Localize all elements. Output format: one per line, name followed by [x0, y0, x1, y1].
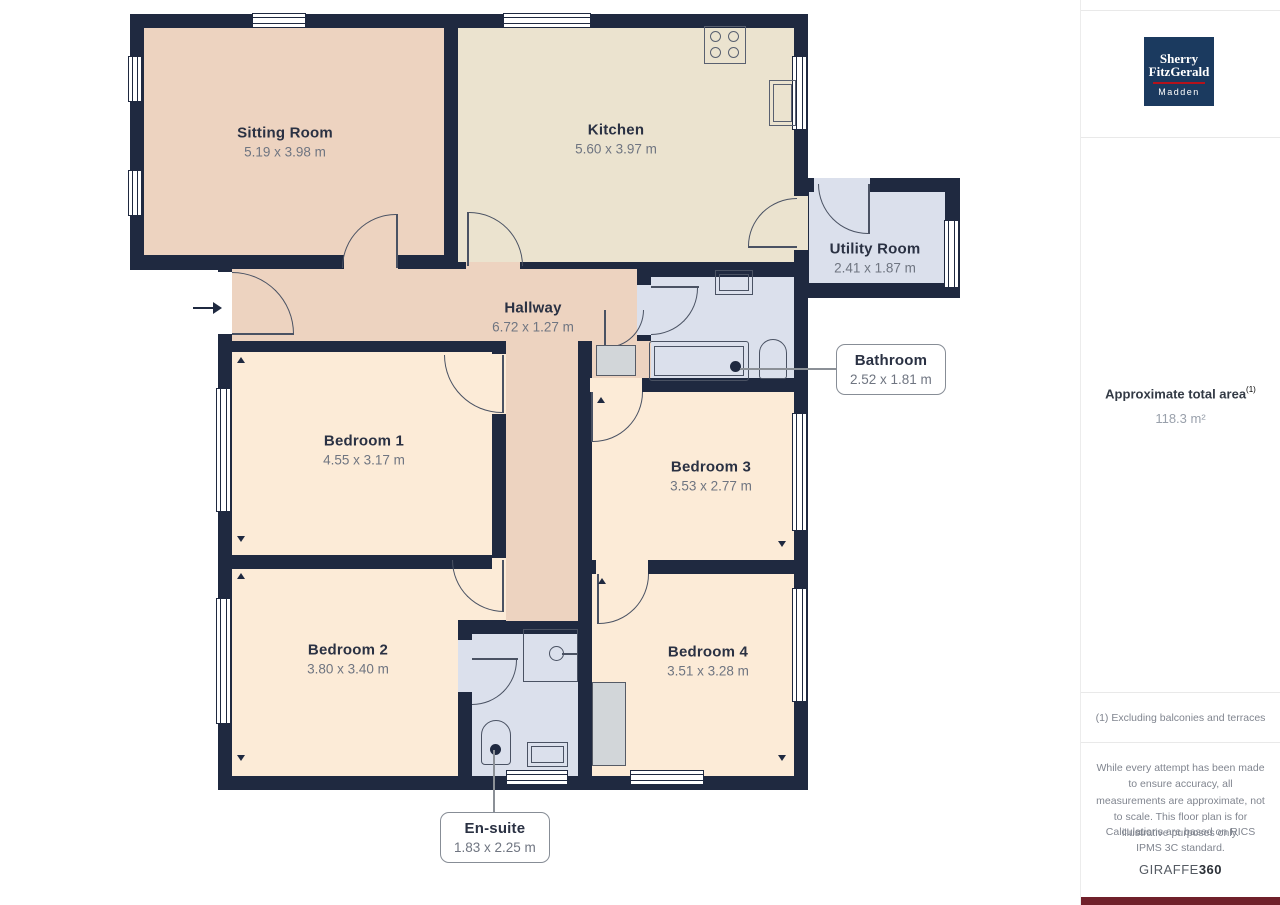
room-dimensions: 2.41 x 1.87 m: [830, 261, 921, 276]
measure-arrow: [598, 578, 606, 584]
logo-text: Madden: [1144, 87, 1214, 97]
measure-arrow: [237, 536, 245, 542]
room-dimensions: 3.53 x 2.77 m: [670, 479, 752, 494]
bedroom3-door-gap: [590, 378, 642, 392]
brand-text: GIRAFFE: [1139, 862, 1199, 877]
window: [216, 388, 231, 512]
room-name: Kitchen: [575, 122, 657, 139]
room-name: En-suite: [454, 820, 536, 837]
room-label-bedroom3: Bedroom 3 3.53 x 2.77 m: [670, 459, 752, 494]
disclaimer-standard: Calculations are based on RICS IPMS 3C s…: [1095, 824, 1266, 857]
shower-arm: [562, 653, 578, 655]
bathtub-dot: [730, 361, 741, 372]
room-name: Utility Room: [830, 241, 921, 258]
brand-text-bold: 360: [1199, 862, 1222, 877]
room-dimensions: 3.51 x 3.28 m: [667, 664, 749, 679]
total-area-footnote-mark: (1): [1246, 385, 1256, 394]
window: [630, 770, 704, 785]
divider: [1081, 10, 1280, 11]
door-leaf: [868, 184, 870, 234]
room-dimensions: 5.60 x 3.97 m: [575, 142, 657, 157]
window: [503, 13, 591, 28]
total-area-value: 118.3 m²: [1081, 411, 1280, 426]
room-label-bedroom4: Bedroom 4 3.51 x 3.28 m: [667, 644, 749, 679]
window: [128, 170, 142, 216]
room-name: Bedroom 4: [667, 644, 749, 661]
door-leaf: [502, 355, 504, 413]
logo-rule: [1153, 82, 1205, 84]
room-name: Bedroom 3: [670, 459, 752, 476]
logo-text: FitzGerald: [1144, 65, 1214, 79]
toilet-dot: [490, 744, 501, 755]
room-dimensions: 5.19 x 3.98 m: [237, 145, 333, 160]
ensuite-leader-line: [493, 750, 495, 814]
hob-icon: [704, 26, 746, 64]
door-leaf: [748, 246, 797, 248]
window: [252, 13, 306, 28]
room-label-kitchen: Kitchen 5.60 x 3.97 m: [575, 122, 657, 157]
window: [506, 770, 568, 785]
measure-arrow: [778, 541, 786, 547]
giraffe360-logo: GIRAFFE360: [1081, 862, 1280, 877]
entrance-arrow: [193, 307, 215, 309]
room-dimensions: 3.80 x 3.40 m: [307, 662, 389, 677]
room-label-bedroom1: Bedroom 1 4.55 x 3.17 m: [323, 433, 405, 468]
room-name: Bathroom: [850, 352, 932, 369]
divider: [1081, 692, 1280, 693]
toilet-icon: [481, 720, 511, 765]
room-name: Hallway: [492, 300, 574, 317]
storage-cupboard: [596, 345, 636, 376]
room-dimensions: 6.72 x 1.27 m: [492, 320, 574, 335]
callout-ensuite: En-suite 1.83 x 2.25 m: [440, 812, 550, 863]
room-name: Bedroom 2: [307, 642, 389, 659]
sink-icon: [527, 742, 568, 767]
room-label-utility-room: Utility Room 2.41 x 1.87 m: [830, 241, 921, 276]
agency-logo: Sherry FitzGerald Madden: [1144, 37, 1214, 106]
room-name: Bedroom 1: [323, 433, 405, 450]
sink-icon: [715, 270, 753, 295]
room-label-sitting-room: Sitting Room 5.19 x 3.98 m: [237, 125, 333, 160]
room-dimensions: 4.55 x 3.17 m: [323, 453, 405, 468]
measure-arrow: [237, 755, 245, 761]
hallway-floor: [506, 341, 578, 621]
room-dimensions: 2.52 x 1.81 m: [850, 372, 932, 387]
window: [128, 56, 142, 102]
total-area-block: Approximate total area(1) 118.3 m²: [1081, 385, 1280, 426]
footnote: (1) Excluding balconies and terraces: [1095, 710, 1266, 726]
door-leaf: [396, 214, 398, 268]
wardrobe: [592, 682, 626, 766]
measure-arrow: [778, 755, 786, 761]
divider: [1081, 137, 1280, 138]
room-label-bedroom2: Bedroom 2 3.80 x 3.40 m: [307, 642, 389, 677]
floorplan-page: Sitting Room 5.19 x 3.98 m Kitchen 5.60 …: [0, 0, 1280, 905]
window: [216, 598, 231, 724]
window: [792, 413, 807, 531]
measure-arrow: [237, 357, 245, 363]
floor-plan: Sitting Room 5.19 x 3.98 m Kitchen 5.60 …: [0, 0, 1080, 905]
oven-icon: [769, 80, 796, 126]
measure-arrow: [597, 397, 605, 403]
room-label-hallway: Hallway 6.72 x 1.27 m: [492, 300, 574, 335]
info-sidebar: Sherry FitzGerald Madden Approximate tot…: [1080, 0, 1280, 905]
room-name: Sitting Room: [237, 125, 333, 142]
ensuite-door-gap: [458, 640, 472, 692]
measure-arrow: [237, 573, 245, 579]
toilet-icon: [759, 339, 787, 379]
divider: [1081, 742, 1280, 743]
room-dimensions: 1.83 x 2.25 m: [454, 840, 536, 855]
callout-bathroom: Bathroom 2.52 x 1.81 m: [836, 344, 946, 395]
entrance-arrow-head: [213, 302, 222, 314]
total-area-label: Approximate total area: [1105, 386, 1246, 401]
bedroom4-door-gap: [596, 560, 648, 574]
sidebar-footer-accent: [1081, 897, 1280, 905]
window: [944, 220, 959, 288]
bathroom-leader-line: [740, 368, 838, 370]
window: [792, 588, 807, 702]
